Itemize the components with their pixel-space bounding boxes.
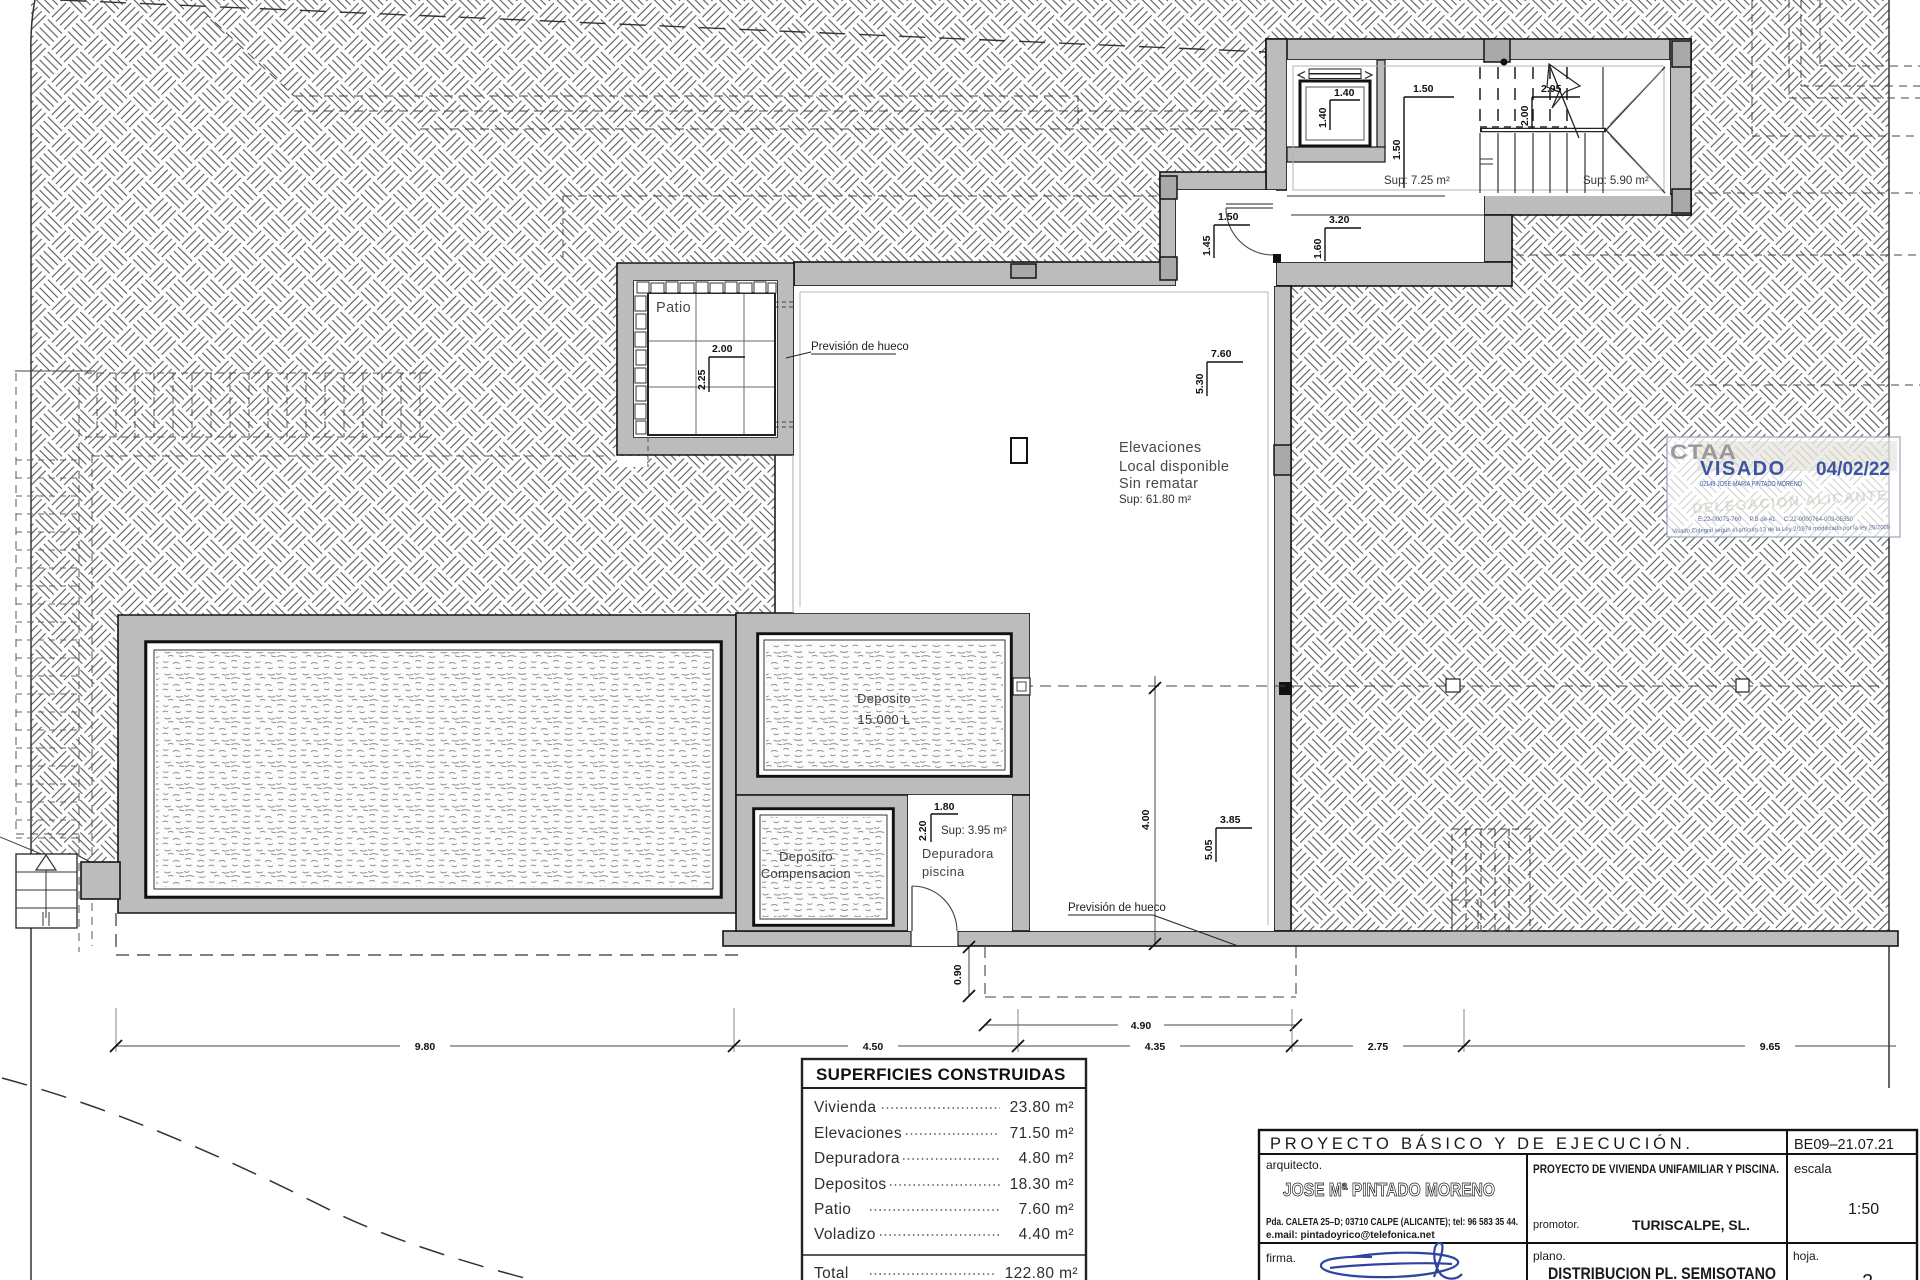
svg-text:Previsión de hueco: Previsión de hueco xyxy=(811,341,909,353)
svg-text:Compensacion: Compensacion xyxy=(761,866,851,881)
svg-text:Depuradora: Depuradora xyxy=(814,1150,900,1167)
svg-text:0.90: 0.90 xyxy=(952,964,964,985)
svg-text:e.mail: pintadoyrico@telefonic: e.mail: pintadoyrico@telefonica.net xyxy=(1266,1230,1435,1241)
svg-text:9.80: 9.80 xyxy=(415,1041,436,1053)
svg-text:PROYECTO DE VIVIENDA UNIFAMILI: PROYECTO DE VIVIENDA UNIFAMILIAR Y PISCI… xyxy=(1533,1164,1779,1176)
svg-text:Previsión de hueco: Previsión de hueco xyxy=(1068,902,1166,914)
svg-text:arquitecto.: arquitecto. xyxy=(1266,1158,1322,1172)
svg-text:1.80: 1.80 xyxy=(934,801,955,813)
svg-text:2.20: 2.20 xyxy=(917,820,929,841)
svg-text:Sup: 5.90 m²: Sup: 5.90 m² xyxy=(1583,175,1649,187)
svg-text:Pda. CALETA 25–D; 03710 CALPE: Pda. CALETA 25–D; 03710 CALPE (ALICANTE)… xyxy=(1266,1217,1518,1228)
svg-text:4.50: 4.50 xyxy=(863,1041,884,1053)
svg-text:5.05: 5.05 xyxy=(1203,839,1215,860)
svg-text:3.85: 3.85 xyxy=(1220,814,1241,826)
svg-text:hoja.: hoja. xyxy=(1793,1249,1819,1263)
svg-text:4.35: 4.35 xyxy=(1145,1041,1166,1053)
svg-text:2: 2 xyxy=(1862,1271,1873,1280)
svg-text:DISTRIBUCION PL. SEMISOTANO: DISTRIBUCION PL. SEMISOTANO xyxy=(1548,1264,1776,1280)
svg-text:18.30 m²: 18.30 m² xyxy=(1010,1176,1074,1193)
svg-text:02149 JOSE MARIA PINTADO MOREN: 02149 JOSE MARIA PINTADO MORENO xyxy=(1700,479,1802,488)
svg-text:Patio: Patio xyxy=(814,1201,851,1218)
svg-text:Depositos: Depositos xyxy=(814,1176,887,1193)
svg-text:7.60: 7.60 xyxy=(1211,348,1232,360)
svg-text:5.30: 5.30 xyxy=(1194,373,1206,394)
svg-text:1.50: 1.50 xyxy=(1413,83,1434,95)
svg-text:promotor.: promotor. xyxy=(1533,1219,1579,1231)
svg-text:1.50: 1.50 xyxy=(1391,139,1403,160)
svg-text:4.90: 4.90 xyxy=(1131,1020,1152,1032)
svg-text:2.00: 2.00 xyxy=(712,343,733,355)
svg-text:4.00: 4.00 xyxy=(1140,809,1152,830)
svg-text:Voladizo: Voladizo xyxy=(814,1226,876,1243)
svg-text:1.50: 1.50 xyxy=(1218,211,1239,223)
svg-text:Patio: Patio xyxy=(656,300,691,316)
svg-text:1:50: 1:50 xyxy=(1848,1201,1879,1218)
svg-text:3.20: 3.20 xyxy=(1329,214,1350,226)
svg-text:2.25: 2.25 xyxy=(696,369,708,390)
svg-text:Deposito: Deposito xyxy=(779,849,833,864)
svg-text:4.80 m²: 4.80 m² xyxy=(1019,1150,1074,1167)
svg-text:piscina: piscina xyxy=(922,864,965,879)
svg-text:4.40 m²: 4.40 m² xyxy=(1019,1226,1074,1243)
svg-text:Sup: 61.80 m²: Sup: 61.80 m² xyxy=(1119,494,1191,506)
svg-text:Deposito: Deposito xyxy=(857,691,911,706)
svg-text:1.60: 1.60 xyxy=(1312,238,1324,259)
svg-text:Elevaciones: Elevaciones xyxy=(1119,440,1202,456)
svg-text:escala: escala xyxy=(1794,1161,1832,1176)
svg-text:1.45: 1.45 xyxy=(1201,235,1213,256)
svg-text:2.95: 2.95 xyxy=(1541,83,1562,95)
svg-text:7.60 m²: 7.60 m² xyxy=(1019,1201,1074,1218)
svg-text:Total: Total xyxy=(814,1265,849,1280)
svg-text:1.40: 1.40 xyxy=(1317,107,1329,128)
svg-text:SUPERFICIES CONSTRUIDAS: SUPERFICIES CONSTRUIDAS xyxy=(816,1065,1066,1084)
svg-text:Sup: 3.95 m²: Sup: 3.95 m² xyxy=(941,825,1007,837)
svg-text:1.40: 1.40 xyxy=(1334,87,1355,99)
svg-text:JOSE Mª PINTADO MORENO: JOSE Mª PINTADO MORENO xyxy=(1283,1179,1495,1200)
svg-text:71.50 m²: 71.50 m² xyxy=(1010,1125,1074,1142)
svg-text:firma.: firma. xyxy=(1266,1251,1296,1265)
svg-text:9.65: 9.65 xyxy=(1760,1041,1781,1053)
svg-text:04/02/22: 04/02/22 xyxy=(1816,459,1890,480)
svg-text:E:22-00075-760 P.B de 41: E:22-00075-760 P.B de 41 C:22-0000764-00… xyxy=(1698,516,1853,523)
svg-text:23.80 m²: 23.80 m² xyxy=(1010,1099,1074,1116)
svg-text:Vivienda: Vivienda xyxy=(814,1099,876,1116)
svg-text:Elevaciones: Elevaciones xyxy=(814,1125,902,1142)
svg-text:15.000 L: 15.000 L xyxy=(857,712,910,727)
svg-text:TURISCALPE, SL.: TURISCALPE, SL. xyxy=(1632,1217,1750,1233)
svg-text:Sup: 7.25 m²: Sup: 7.25 m² xyxy=(1384,175,1450,187)
svg-text:122.80 m²: 122.80 m² xyxy=(1005,1265,1078,1280)
svg-text:plano.: plano. xyxy=(1533,1249,1566,1263)
svg-text:Sin rematar: Sin rematar xyxy=(1119,476,1198,492)
svg-text:2.75: 2.75 xyxy=(1368,1041,1389,1053)
svg-text:VISADO: VISADO xyxy=(1700,458,1786,480)
svg-text:2.00: 2.00 xyxy=(1519,105,1531,126)
svg-text:Local disponible: Local disponible xyxy=(1119,459,1229,475)
svg-text:Depuradora: Depuradora xyxy=(922,846,994,861)
svg-text:BE09–21.07.21: BE09–21.07.21 xyxy=(1794,1137,1894,1153)
